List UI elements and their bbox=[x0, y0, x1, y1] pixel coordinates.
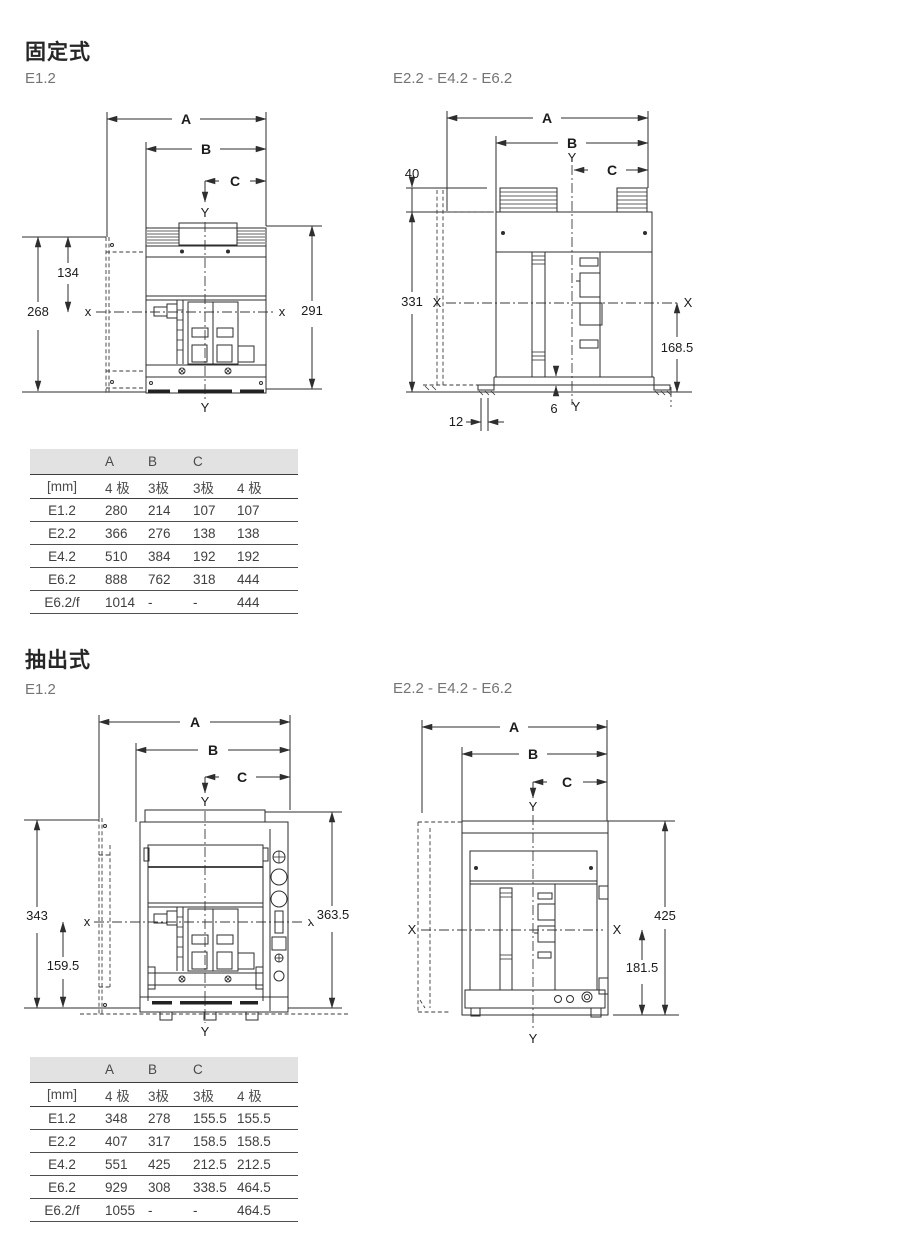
cell: 214 bbox=[140, 499, 186, 522]
fixed-e12-dimension-drawing: A B C Y Y x x 268 134 291 bbox=[20, 100, 340, 425]
cell: 276 bbox=[140, 522, 186, 545]
col-header-b: B bbox=[140, 449, 186, 475]
cell: 338.5 bbox=[186, 1176, 233, 1199]
axis-x-right: X bbox=[684, 295, 693, 310]
dim-letter-b: B bbox=[567, 135, 577, 151]
cell: 407 bbox=[94, 1130, 140, 1153]
table-row: E6.2 929 308 338.5 464.5 bbox=[30, 1176, 298, 1199]
axis-x-left: x bbox=[85, 304, 92, 319]
cell: 138 bbox=[233, 522, 298, 545]
breaker-front-view bbox=[146, 223, 266, 393]
table-row: E2.2 407 317 158.5 158.5 bbox=[30, 1130, 298, 1153]
dim-12: 12 bbox=[449, 414, 463, 429]
drawing-dimension-lines bbox=[24, 715, 342, 1023]
cell: 384 bbox=[140, 545, 186, 568]
dim-268: 268 bbox=[27, 304, 49, 319]
figure-label-drawout-e12: E1.2 bbox=[25, 681, 56, 698]
axis-y-bottom: Y bbox=[201, 400, 210, 415]
pole-header-row: [mm] 4 极 3极 3极 4 极 bbox=[30, 1083, 298, 1107]
cell: 158.5 bbox=[233, 1130, 298, 1153]
figure-label-fixed-e12: E1.2 bbox=[25, 70, 56, 87]
cell: 366 bbox=[94, 522, 140, 545]
row-name: E6.2/f bbox=[30, 1199, 94, 1222]
cradle-and-breaker-front-view bbox=[140, 810, 288, 1020]
dim-letter-a: A bbox=[509, 719, 519, 735]
cell: 138 bbox=[186, 522, 233, 545]
col-header-c: C bbox=[186, 1057, 233, 1083]
pole-header: 4 极 bbox=[94, 475, 140, 499]
table-row: E1.2 348 278 155.5 155.5 bbox=[30, 1107, 298, 1130]
col-header-empty bbox=[233, 1057, 298, 1083]
cell: 107 bbox=[186, 499, 233, 522]
table-row: E4.2 510 384 192 192 bbox=[30, 545, 298, 568]
row-name: E2.2 bbox=[30, 522, 94, 545]
axis-y-top: Y bbox=[529, 799, 538, 814]
row-name: E4.2 bbox=[30, 1153, 94, 1176]
cell: 280 bbox=[94, 499, 140, 522]
col-header-b: B bbox=[140, 1057, 186, 1083]
axis-x-right: x bbox=[279, 304, 286, 319]
dim-363-5: 363.5 bbox=[317, 907, 350, 922]
dimension-table-drawout: A B C [mm] 4 极 3极 3极 4 极 E1.2 348 278 15… bbox=[30, 1057, 298, 1222]
dim-343: 343 bbox=[26, 908, 48, 923]
cell: 155.5 bbox=[186, 1107, 233, 1130]
dim-letter-b: B bbox=[208, 742, 218, 758]
axis-y-top: Y bbox=[568, 150, 577, 165]
cell: 464.5 bbox=[233, 1199, 298, 1222]
cell: 317 bbox=[140, 1130, 186, 1153]
axis-x-left: x bbox=[84, 914, 91, 929]
row-name: E1.2 bbox=[30, 499, 94, 522]
cell: 444 bbox=[233, 591, 298, 614]
dim-134: 134 bbox=[57, 265, 79, 280]
axis-y-top: Y bbox=[201, 794, 210, 809]
cell: 308 bbox=[140, 1176, 186, 1199]
axis-y-top: Y bbox=[201, 205, 210, 220]
fourth-pole-phantom-outline bbox=[418, 822, 462, 1012]
row-name: E6.2 bbox=[30, 1176, 94, 1199]
figure-label-drawout-e22: E2.2 - E4.2 - E6.2 bbox=[393, 680, 512, 697]
dim-letter-c: C bbox=[562, 774, 572, 790]
table-row: E4.2 551 425 212.5 212.5 bbox=[30, 1153, 298, 1176]
pole-header: 4 极 bbox=[233, 1083, 298, 1107]
axis-y-bottom: Y bbox=[529, 1031, 538, 1046]
cell: 278 bbox=[140, 1107, 186, 1130]
col-header-empty bbox=[233, 449, 298, 475]
table-row: E6.2/f 1055 - - 464.5 bbox=[30, 1199, 298, 1222]
cell: - bbox=[186, 591, 233, 614]
dim-letter-a: A bbox=[181, 111, 191, 127]
cell: 192 bbox=[233, 545, 298, 568]
drawing-labels: A B C Y Y x x 343 159.5 363.5 bbox=[20, 714, 354, 1039]
dimension-table-fixed: A B C [mm] 4 极 3极 3极 4 极 E1.2 280 214 10… bbox=[30, 449, 298, 614]
drawing-labels: A B C Y Y X X 40 331 168.5 6 12 bbox=[395, 110, 698, 429]
unit-label: [mm] bbox=[30, 1083, 94, 1107]
figure-label-fixed-e22: E2.2 - E4.2 - E6.2 bbox=[393, 70, 512, 87]
cell: 762 bbox=[140, 568, 186, 591]
fixed-e22-dimension-drawing: A B C Y Y X X 40 331 168.5 6 12 bbox=[390, 95, 710, 440]
cell: 1014 bbox=[94, 591, 140, 614]
cell: 888 bbox=[94, 568, 140, 591]
dim-168-5: 168.5 bbox=[661, 340, 694, 355]
dim-6: 6 bbox=[550, 401, 557, 416]
drawing-dimension-lines bbox=[421, 720, 679, 1030]
corner-cell bbox=[30, 1057, 94, 1083]
group-header-row: A B C bbox=[30, 1057, 298, 1083]
dim-letter-c: C bbox=[237, 769, 247, 785]
cell: - bbox=[140, 1199, 186, 1222]
pole-header-row: [mm] 4 极 3极 3极 4 极 bbox=[30, 475, 298, 499]
drawing-dimension-lines bbox=[22, 112, 322, 399]
dim-letter-a: A bbox=[190, 714, 200, 730]
cell: 107 bbox=[233, 499, 298, 522]
axis-x-right: X bbox=[613, 922, 622, 937]
pole-header: 4 极 bbox=[94, 1083, 140, 1107]
pole-header: 3极 bbox=[186, 1083, 233, 1107]
row-name: E2.2 bbox=[30, 1130, 94, 1153]
cell: 510 bbox=[94, 545, 140, 568]
cell: 464.5 bbox=[233, 1176, 298, 1199]
group-header-row: A B C bbox=[30, 449, 298, 475]
cell: 212.5 bbox=[186, 1153, 233, 1176]
pole-header: 3极 bbox=[186, 475, 233, 499]
cell: 192 bbox=[186, 545, 233, 568]
row-name: E6.2 bbox=[30, 568, 94, 591]
row-name: E6.2/f bbox=[30, 591, 94, 614]
pole-header: 3极 bbox=[140, 1083, 186, 1107]
corner-cell bbox=[30, 449, 94, 475]
pole-header: 3极 bbox=[140, 475, 186, 499]
col-header-a: A bbox=[94, 449, 140, 475]
table-row: E6.2 888 762 318 444 bbox=[30, 568, 298, 591]
cell: 318 bbox=[186, 568, 233, 591]
axis-y-bottom: Y bbox=[201, 1024, 210, 1039]
dim-159-5: 159.5 bbox=[47, 958, 80, 973]
drawing-dimension-lines bbox=[406, 111, 692, 431]
door-cutout-dashed-outline bbox=[106, 237, 146, 393]
section-title-fixed: 固定式 bbox=[25, 36, 91, 66]
drawout-e12-dimension-drawing: A B C Y Y x x 343 159.5 363.5 bbox=[20, 705, 365, 1040]
cell: 212.5 bbox=[233, 1153, 298, 1176]
axis-x-left: X bbox=[408, 922, 417, 937]
unit-label: [mm] bbox=[30, 475, 94, 499]
table-row: E2.2 366 276 138 138 bbox=[30, 522, 298, 545]
cell: 348 bbox=[94, 1107, 140, 1130]
cell: 1055 bbox=[94, 1199, 140, 1222]
dim-letter-b: B bbox=[201, 141, 211, 157]
table-row: E1.2 280 214 107 107 bbox=[30, 499, 298, 522]
cradle-and-breaker-front-view bbox=[462, 821, 608, 1017]
row-name: E1.2 bbox=[30, 1107, 94, 1130]
col-header-a: A bbox=[94, 1057, 140, 1083]
cell: 444 bbox=[233, 568, 298, 591]
table-row: E6.2/f 1014 - - 444 bbox=[30, 591, 298, 614]
cell: - bbox=[186, 1199, 233, 1222]
dim-331: 331 bbox=[401, 294, 423, 309]
cell: 155.5 bbox=[233, 1107, 298, 1130]
cell: - bbox=[140, 591, 186, 614]
dim-181-5: 181.5 bbox=[626, 960, 659, 975]
cell: 929 bbox=[94, 1176, 140, 1199]
row-name: E4.2 bbox=[30, 545, 94, 568]
dim-40: 40 bbox=[405, 166, 419, 181]
drawout-e22-dimension-drawing: A B C Y Y X X 425 181.5 bbox=[395, 700, 695, 1045]
breaker-side-view bbox=[478, 188, 671, 395]
dim-291: 291 bbox=[301, 303, 323, 318]
cell: 425 bbox=[140, 1153, 186, 1176]
dim-letter-b: B bbox=[528, 746, 538, 762]
axis-x-left: X bbox=[433, 295, 442, 310]
drawing-labels: A B C Y Y x x 268 134 291 bbox=[21, 111, 329, 415]
dim-425: 425 bbox=[654, 908, 676, 923]
axis-y-bottom: Y bbox=[572, 399, 581, 414]
dim-letter-c: C bbox=[230, 173, 240, 189]
section-title-drawout: 抽出式 bbox=[25, 644, 91, 674]
dim-letter-c: C bbox=[607, 162, 617, 178]
pole-header: 4 极 bbox=[233, 475, 298, 499]
cell: 158.5 bbox=[186, 1130, 233, 1153]
fourth-pole-phantom-outline bbox=[423, 190, 671, 407]
dim-letter-a: A bbox=[542, 110, 552, 126]
cell: 551 bbox=[94, 1153, 140, 1176]
col-header-c: C bbox=[186, 449, 233, 475]
